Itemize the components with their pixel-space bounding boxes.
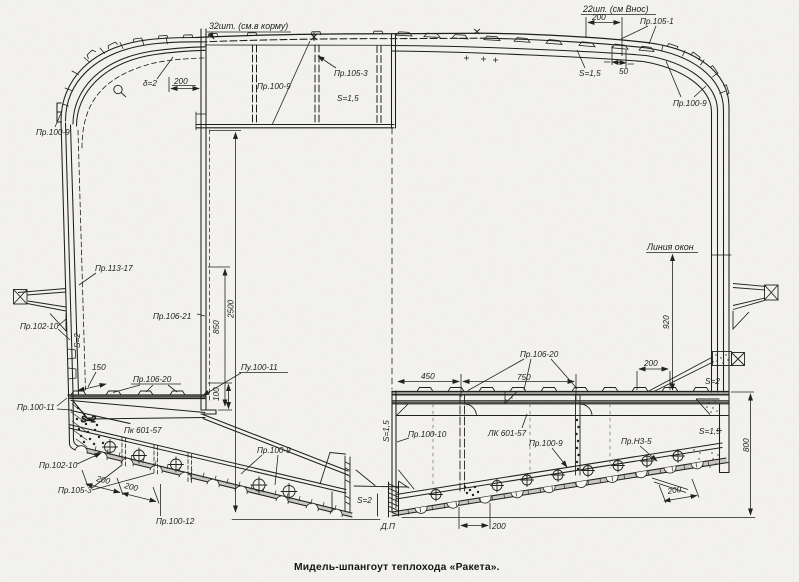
- svg-text:Пр.106-21: Пр.106-21: [153, 312, 191, 321]
- svg-text:Пр.100-12: Пр.100-12: [156, 517, 195, 526]
- svg-text:750: 750: [517, 373, 531, 382]
- svg-text:Пр.100-11: Пр.100-11: [17, 403, 55, 412]
- svg-text:Пр.102-10: Пр.102-10: [20, 322, 59, 331]
- svg-text:Пр.100-9: Пр.100-9: [36, 128, 70, 137]
- svg-text:Пр.102-10: Пр.102-10: [39, 461, 78, 470]
- svg-text:S=1,5: S=1,5: [699, 427, 721, 436]
- svg-text:Мидель-шпангоут теплохода «Р: Мидель-шпангоут теплохода «Ракета».: [294, 562, 500, 573]
- svg-text:Пр.105-1: Пр.105-1: [640, 17, 674, 26]
- svg-text:Пр.106-20: Пр.106-20: [133, 375, 172, 384]
- svg-text:Пр.100-9: Пр.100-9: [257, 446, 291, 455]
- svg-text:Пр.105-3: Пр.105-3: [334, 69, 368, 78]
- svg-text:100: 100: [212, 387, 221, 401]
- svg-text:Линия окон: Линия окон: [646, 242, 694, 252]
- svg-text:800: 800: [742, 438, 751, 452]
- svg-text:S=2: S=2: [705, 377, 720, 386]
- svg-text:S=2: S=2: [73, 333, 82, 348]
- svg-text:δ=2: δ=2: [143, 79, 157, 88]
- svg-text:Пр.105-3: Пр.105-3: [58, 486, 92, 495]
- svg-text:200: 200: [643, 359, 658, 368]
- svg-text:200: 200: [491, 522, 506, 531]
- svg-text:Пр.113-17: Пр.113-17: [95, 264, 133, 273]
- svg-text:200: 200: [173, 77, 188, 86]
- svg-text:Пр.Н3-5: Пр.Н3-5: [621, 437, 652, 446]
- svg-text:S=1,5: S=1,5: [337, 94, 359, 103]
- svg-text:ЛК 601-57: ЛК 601-57: [487, 429, 527, 438]
- svg-text:Д.П: Д.П: [380, 522, 395, 531]
- svg-text:Пр.100-10: Пр.100-10: [408, 430, 447, 439]
- svg-text:S=2: S=2: [81, 415, 96, 424]
- svg-text:22шп. (см Внос): 22шп. (см Внос): [582, 4, 649, 14]
- svg-text:450: 450: [421, 372, 435, 381]
- svg-text:Пр.100-9: Пр.100-9: [673, 99, 707, 108]
- svg-text:32шт. (см.в корму): 32шт. (см.в корму): [209, 21, 288, 31]
- svg-text:50: 50: [619, 67, 629, 76]
- svg-text:Пр.100-9: Пр.100-9: [529, 439, 563, 448]
- svg-text:Пр.106-20: Пр.106-20: [520, 350, 559, 359]
- svg-text:Пр.100-9: Пр.100-9: [257, 82, 291, 91]
- svg-text:Пу.100-11: Пу.100-11: [241, 363, 278, 372]
- svg-text:850: 850: [212, 320, 221, 334]
- svg-text:920: 920: [662, 315, 671, 329]
- svg-text:S=1,5: S=1,5: [579, 69, 601, 78]
- svg-text:S=1,5: S=1,5: [382, 420, 391, 442]
- svg-text:2500: 2500: [227, 299, 236, 319]
- svg-text:Пк 601-57: Пк 601-57: [124, 426, 162, 435]
- svg-text:S=2: S=2: [357, 496, 372, 505]
- svg-text:150: 150: [92, 363, 106, 372]
